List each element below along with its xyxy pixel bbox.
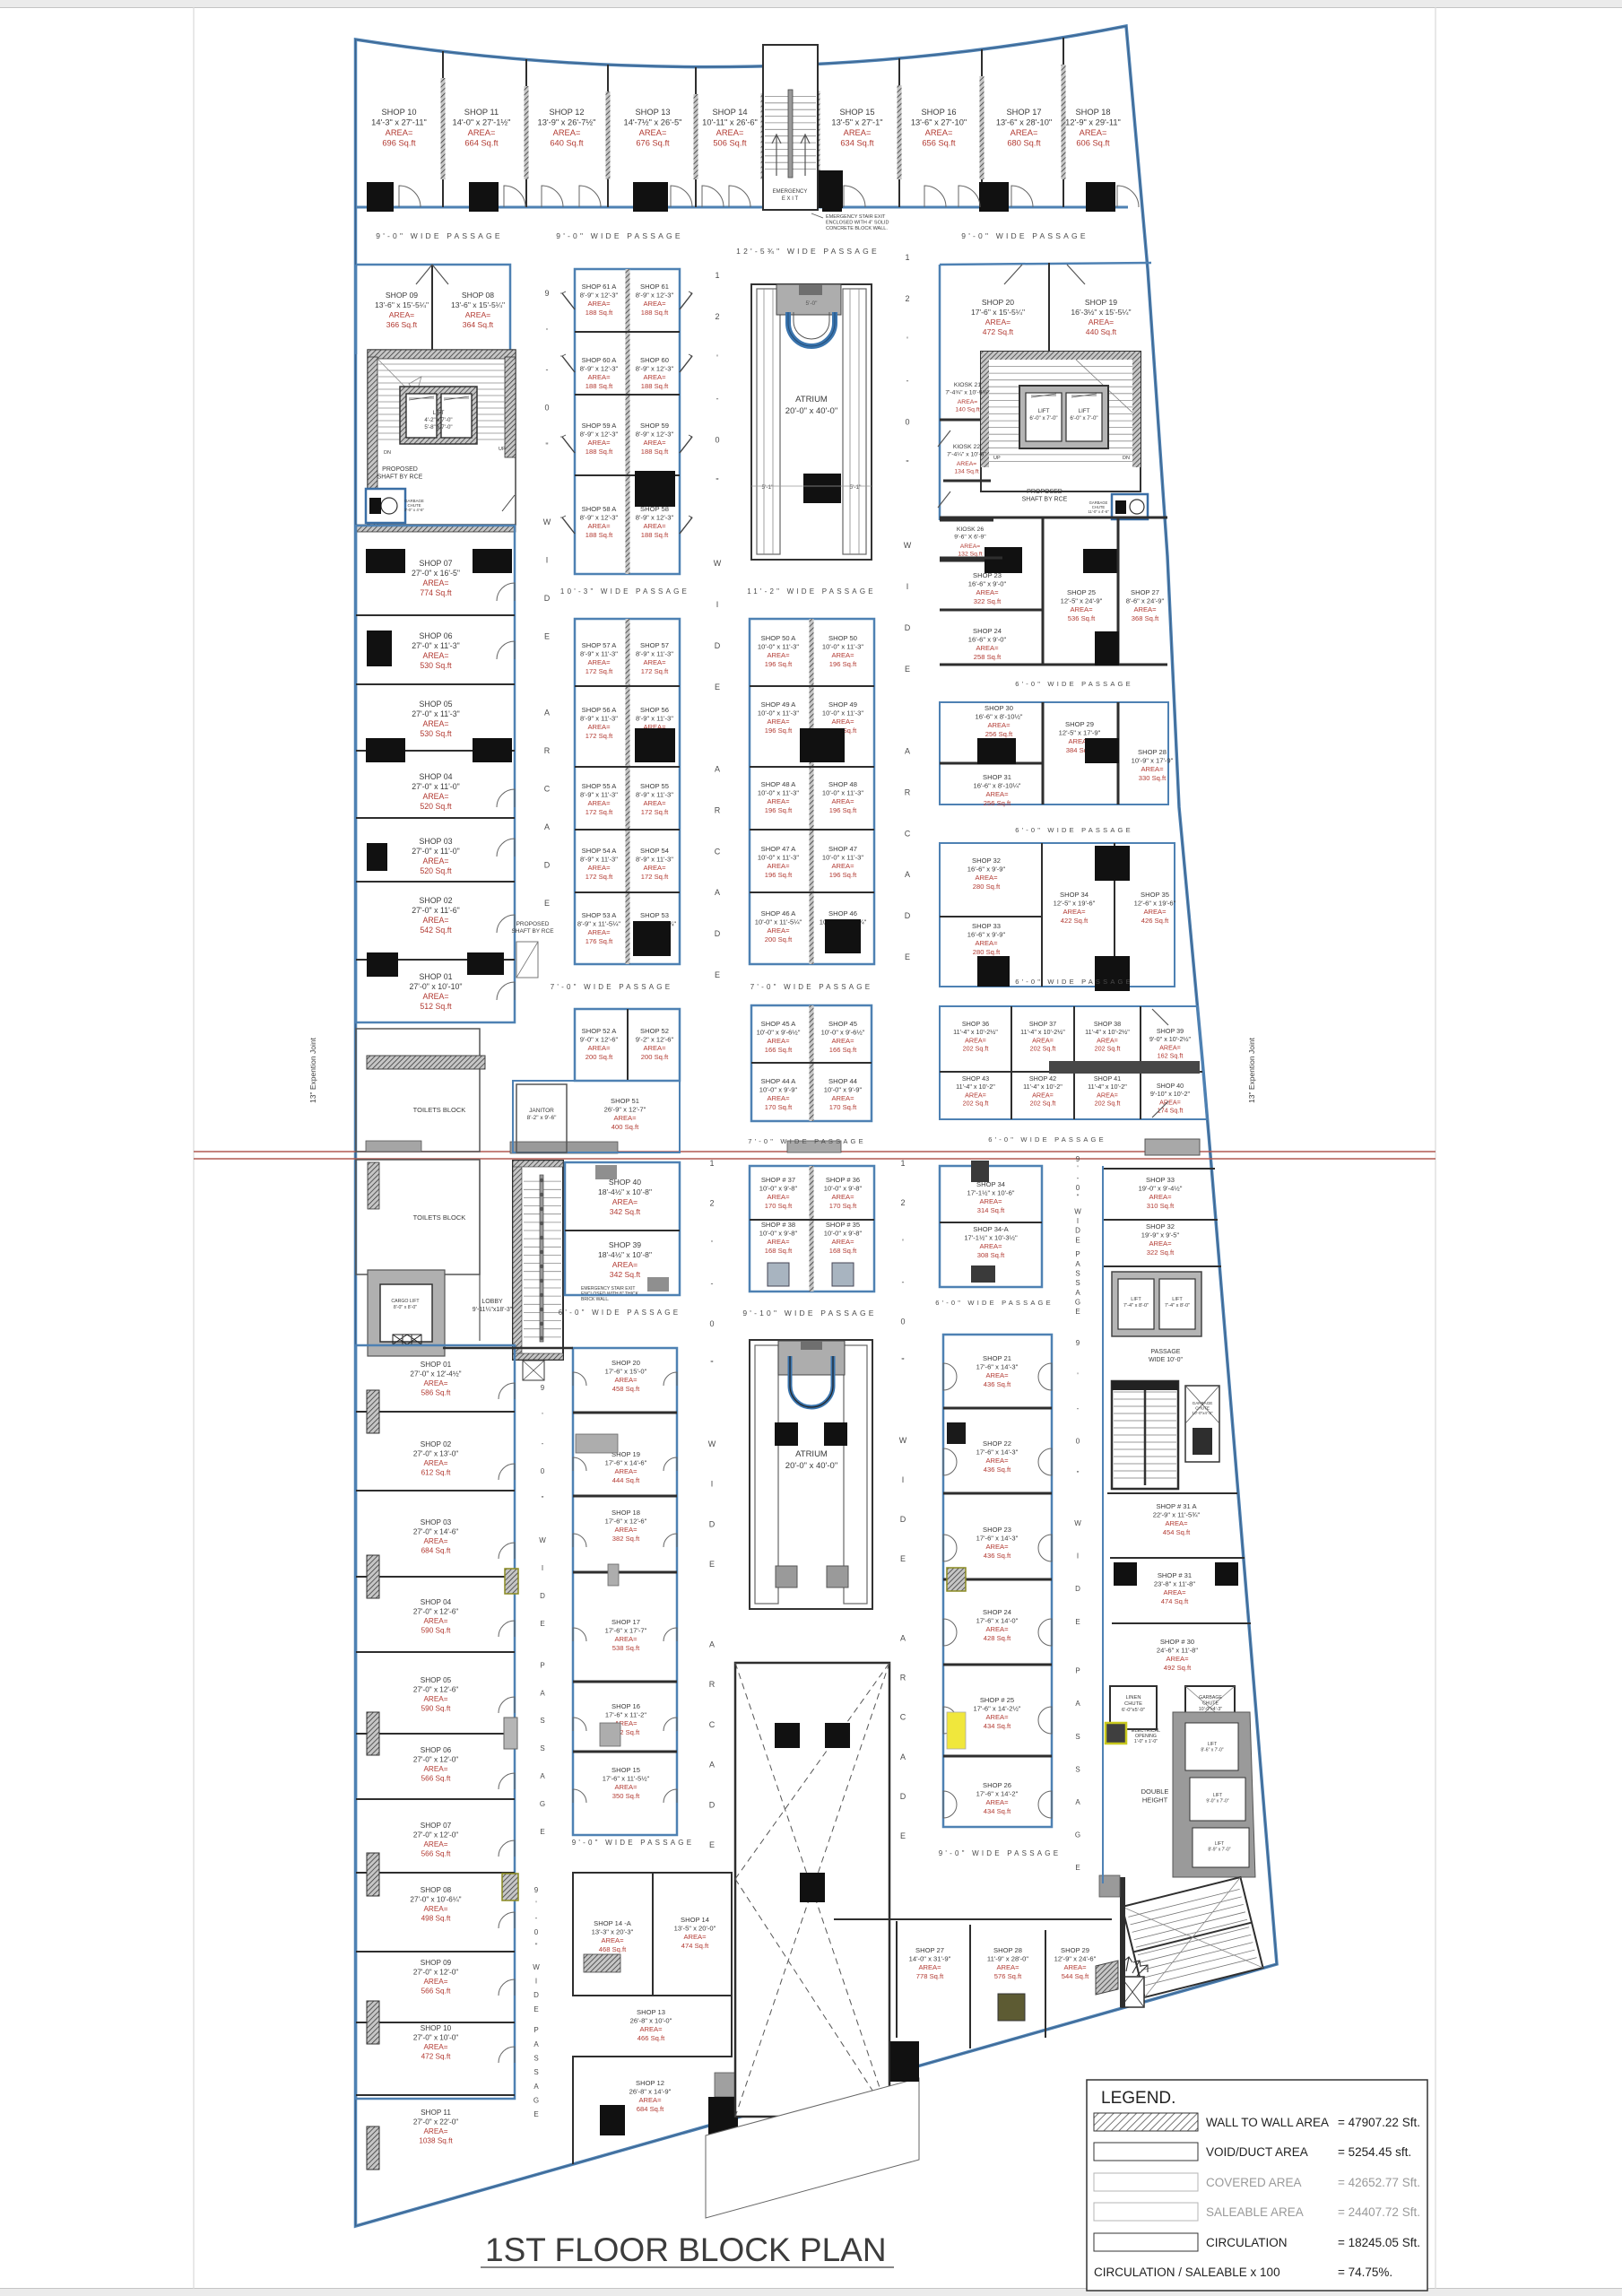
svg-text:AREA=132 Sq.ft: AREA=132 Sq.ft xyxy=(958,544,982,558)
svg-text:6'-0" WIDE PASSAGE: 6'-0" WIDE PASSAGE xyxy=(935,1299,1054,1307)
svg-text:= 42652.77 Sft.: = 42652.77 Sft. xyxy=(1338,2176,1420,2189)
svg-text:UP: UP xyxy=(499,447,506,452)
svg-text:KIOSK 269'-6" X 6'-9": KIOSK 269'-6" X 6'-9" xyxy=(954,526,986,541)
svg-text:9'-0" WIDE PASSAGE: 9'-0" WIDE PASSAGE xyxy=(572,1839,695,1847)
svg-text:= 47907.22 Sft.: = 47907.22 Sft. xyxy=(1338,2116,1420,2129)
svg-text:AREA=140 Sq.ft: AREA=140 Sq.ft xyxy=(955,399,979,413)
svg-text:PROPOSEDSHAFT BY RCE: PROPOSEDSHAFT BY RCE xyxy=(377,466,423,481)
svg-text:6'-0" WIDE PASSAGE: 6'-0" WIDE PASSAGE xyxy=(1015,826,1133,834)
svg-text:CARGO LIFT8'-0" x 8'-0": CARGO LIFT8'-0" x 8'-0" xyxy=(391,1299,420,1310)
svg-text:9'-0" WIDE PASSAGE: 9'-0" WIDE PASSAGE xyxy=(939,1849,1062,1857)
svg-text:COVERED AREA: COVERED AREA xyxy=(1206,2176,1302,2189)
svg-text:LEGEND.: LEGEND. xyxy=(1101,2089,1175,2108)
svg-text:PROPOSEDSHAFT BY RCE: PROPOSEDSHAFT BY RCE xyxy=(1022,489,1068,503)
svg-text:5'-1": 5'-1" xyxy=(850,484,863,491)
svg-text:DN: DN xyxy=(1123,456,1130,461)
svg-text:= 74.75%.: = 74.75%. xyxy=(1338,2266,1392,2279)
svg-text:11'-2" WIDE PASSAGE: 11'-2" WIDE PASSAGE xyxy=(747,587,876,596)
svg-text:13" Expention Joint: 13" Expention Joint xyxy=(1247,1037,1256,1103)
svg-text:5'-0": 5'-0" xyxy=(806,300,819,307)
svg-text:TOILETS BLOCK: TOILETS BLOCK xyxy=(413,1213,466,1222)
svg-text:7'-0" WIDE PASSAGE: 7'-0" WIDE PASSAGE xyxy=(748,1137,866,1145)
svg-text:UP: UP xyxy=(993,456,1001,461)
svg-text:TOILETS BLOCK: TOILETS BLOCK xyxy=(413,1106,466,1114)
svg-text:PROPOSEDSHAFT BY RCE: PROPOSEDSHAFT BY RCE xyxy=(511,921,554,935)
svg-text:WALL TO WALL AREA: WALL TO WALL AREA xyxy=(1206,2116,1329,2129)
svg-text:1ST FLOOR BLOCK PLAN: 1ST FLOOR BLOCK PLAN xyxy=(485,2231,887,2268)
svg-text:9'-0" WIDE PASSAGE: 9'-0" WIDE PASSAGE xyxy=(961,231,1088,240)
svg-text:DOUBLEHEIGHT: DOUBLEHEIGHT xyxy=(1141,1787,1169,1805)
svg-text:9'-0" WIDE PASSAGE: 9'-0" WIDE PASSAGE xyxy=(556,231,682,240)
svg-text:VOID/DUCT AREA: VOID/DUCT AREA xyxy=(1206,2145,1308,2159)
svg-text:CIRCULATION / SALEABLE x 100: CIRCULATION / SALEABLE x 100 xyxy=(1094,2266,1280,2279)
svg-text:7'-0" WIDE PASSAGE: 7'-0" WIDE PASSAGE xyxy=(750,983,873,991)
svg-text:6'-0" WIDE PASSAGE: 6'-0" WIDE PASSAGE xyxy=(988,1135,1106,1144)
svg-text:12'-5¾" WIDE PASSAGE: 12'-5¾" WIDE PASSAGE xyxy=(736,247,880,256)
svg-text:9'-10" WIDE PASSAGE: 9'-10" WIDE PASSAGE xyxy=(742,1309,876,1318)
svg-text:6'-0" WIDE PASSAGE: 6'-0" WIDE PASSAGE xyxy=(1015,978,1133,986)
svg-text:SALEABLE AREA: SALEABLE AREA xyxy=(1206,2205,1304,2219)
svg-text:10'-3" WIDE PASSAGE: 10'-3" WIDE PASSAGE xyxy=(560,587,690,596)
svg-text:AREA=134 Sq.ft: AREA=134 Sq.ft xyxy=(954,461,978,475)
svg-text:7'-0" WIDE PASSAGE: 7'-0" WIDE PASSAGE xyxy=(551,983,673,991)
svg-text:= 5254.45 sft.: = 5254.45 sft. xyxy=(1338,2145,1411,2159)
svg-text:ELECTRICALOPENING1'-0" x 1'-0": ELECTRICALOPENING1'-0" x 1'-0" xyxy=(1132,1728,1160,1744)
svg-text:13" Expention Joint: 13" Expention Joint xyxy=(308,1037,317,1103)
svg-text:CIRCULATION: CIRCULATION xyxy=(1206,2236,1288,2249)
svg-text:5'-1": 5'-1" xyxy=(762,484,775,491)
svg-text:JANITOR8'-2" x 9'-6": JANITOR8'-2" x 9'-6" xyxy=(527,1108,557,1121)
svg-text:DN: DN xyxy=(384,450,391,456)
svg-text:= 24407.72 Sft.: = 24407.72 Sft. xyxy=(1338,2205,1420,2219)
svg-text:6'-0" WIDE PASSAGE: 6'-0" WIDE PASSAGE xyxy=(1015,680,1133,688)
svg-text:9'-0" WIDE PASSAGE: 9'-0" WIDE PASSAGE xyxy=(376,231,502,240)
svg-text:EMERGENCY STAIR EXITENCLOSED W: EMERGENCY STAIR EXITENCLOSED WITH 4" SOL… xyxy=(826,214,889,231)
svg-text:= 18245.05 Sft.: = 18245.05 Sft. xyxy=(1338,2236,1420,2249)
svg-text:6'-0" WIDE PASSAGE: 6'-0" WIDE PASSAGE xyxy=(559,1309,681,1317)
